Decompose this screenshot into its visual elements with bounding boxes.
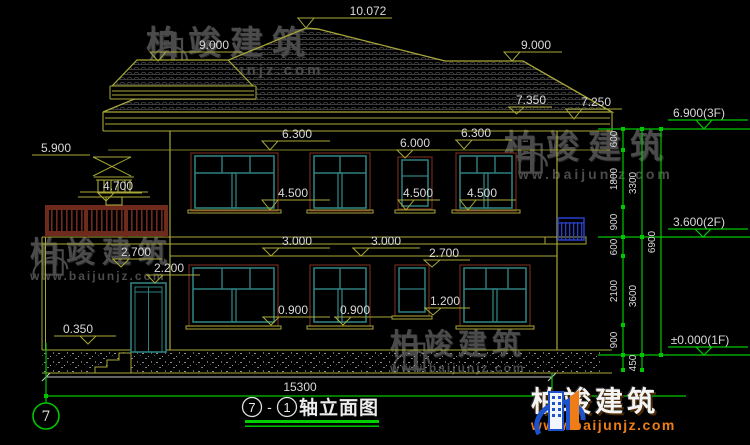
level-eave-top: 7.350 bbox=[516, 93, 546, 107]
dim-total-width: 15300 bbox=[42, 373, 556, 394]
window-2f-small bbox=[395, 157, 435, 213]
level-2f: 3.600(2F) bbox=[673, 215, 725, 229]
level-sill2f-a: 4.500 bbox=[278, 186, 308, 200]
axis-and-chain: 600 1800 900 600 2100 900 3300 3600 450 … bbox=[33, 106, 750, 429]
chain2-seg1: 3600 bbox=[628, 284, 639, 307]
chain2-seg2: 450 bbox=[628, 354, 639, 371]
level-sill1f-a: 0.900 bbox=[278, 303, 308, 317]
chain1-seg4: 2100 bbox=[609, 279, 620, 302]
level-band-a: 3.000 bbox=[282, 234, 312, 248]
window-2f-center bbox=[307, 153, 373, 213]
chain1-seg0: 600 bbox=[609, 130, 620, 147]
level-head1f-left: 2.700 bbox=[121, 245, 151, 259]
chain1-seg1: 1800 bbox=[609, 167, 620, 190]
level-eave: 7.250 bbox=[581, 95, 611, 109]
roof-left-wing bbox=[110, 60, 256, 99]
entrance-door bbox=[131, 283, 166, 352]
level-railing: 4.700 bbox=[103, 179, 133, 193]
level-band-b: 3.000 bbox=[371, 234, 401, 248]
level-head1f-center: 2.700 bbox=[429, 246, 459, 260]
plinth-ground bbox=[42, 347, 612, 373]
elevation-drawing: 10.072 9.000 9.000 7.350 7.250 6.300 6.3… bbox=[0, 0, 750, 445]
title-underline-thick bbox=[245, 420, 379, 423]
dim-total-width-text: 15300 bbox=[283, 380, 317, 394]
chain2-seg0: 3300 bbox=[628, 171, 639, 194]
level-door-head: 2.200 bbox=[154, 261, 184, 275]
cad-elevation-screenshot: 柏竣建筑 www.baijunjz.com 柏竣建筑 www.baijunjz.… bbox=[0, 0, 750, 445]
level-sill2f-c: 4.500 bbox=[467, 186, 497, 200]
chain-labels: 600 1800 900 600 2100 900 3300 3600 450 … bbox=[609, 130, 658, 371]
level-sill1f-b: 0.900 bbox=[340, 303, 370, 317]
eave-cornice bbox=[103, 112, 612, 131]
window-1f-right bbox=[456, 265, 534, 329]
level-sill1f-small: 1.200 bbox=[430, 294, 460, 308]
level-sill2f-b: 4.500 bbox=[403, 186, 433, 200]
chain1-seg5: 900 bbox=[609, 331, 620, 348]
window-1f-center bbox=[307, 265, 373, 329]
level-3f: 6.900(3F) bbox=[673, 106, 725, 120]
title-axis-start: 7 bbox=[248, 400, 255, 415]
balcony-railing bbox=[558, 218, 584, 240]
title-label: 轴立面图 bbox=[299, 396, 379, 419]
title-dash: - bbox=[267, 399, 272, 415]
floor-level-labels: 6.900(3F) 3.600(2F) ±0.000(1F) bbox=[671, 106, 730, 347]
window-1f-small bbox=[392, 265, 432, 319]
title-underline-thin bbox=[245, 426, 379, 427]
level-ridge: 10.072 bbox=[350, 4, 387, 18]
window-2f-right bbox=[452, 153, 520, 213]
porch-railing bbox=[45, 205, 168, 237]
chain3-seg0: 6900 bbox=[647, 230, 658, 253]
level-head2f-small: 6.000 bbox=[400, 136, 430, 150]
level-ridge-left: 9.000 bbox=[199, 38, 229, 52]
level-finial: 5.900 bbox=[41, 141, 71, 155]
axis-bubble-7: 7 bbox=[42, 409, 51, 425]
level-head2f-b: 6.300 bbox=[461, 126, 491, 140]
level-porch-floor: 0.350 bbox=[63, 322, 93, 336]
chain1-seg2: 900 bbox=[609, 213, 620, 230]
window-2f-left bbox=[188, 153, 281, 213]
level-ridge-right: 9.000 bbox=[521, 38, 551, 52]
level-head2f-a: 6.300 bbox=[282, 127, 312, 141]
drawing-title: 7 - 1 轴立面图 bbox=[243, 396, 380, 427]
chain1-seg3: 600 bbox=[609, 238, 620, 255]
title-axis-end: 1 bbox=[283, 400, 290, 415]
level-1f: ±0.000(1F) bbox=[671, 333, 730, 347]
window-1f-left bbox=[186, 265, 281, 329]
